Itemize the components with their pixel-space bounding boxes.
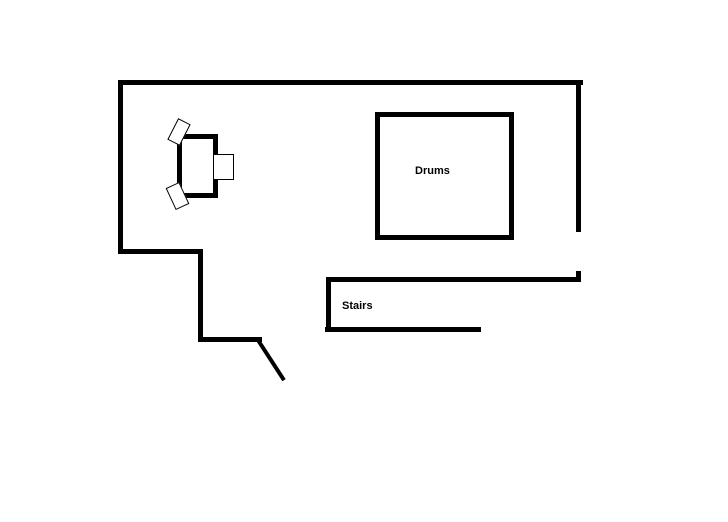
stairs-wall-right-tick <box>576 271 581 282</box>
notch-wall-horizontal <box>118 249 203 254</box>
stairs-wall-bottom <box>325 327 481 332</box>
desk-box <box>177 134 218 198</box>
stairs-wall-left <box>326 277 331 332</box>
floor-plan-canvas: Drums Stairs <box>0 0 728 522</box>
lower-wall-horizontal <box>198 337 262 342</box>
stairs-label: Stairs <box>342 300 373 313</box>
outer-wall-top <box>121 80 583 85</box>
outer-wall-left <box>118 80 123 254</box>
lower-wall-diagonal <box>256 338 286 381</box>
drums-label: Drums <box>415 165 450 178</box>
outer-wall-right <box>576 81 581 232</box>
desk-attachment-box <box>213 154 234 180</box>
notch-wall-vertical <box>198 249 203 342</box>
stairs-wall-top <box>326 277 580 282</box>
